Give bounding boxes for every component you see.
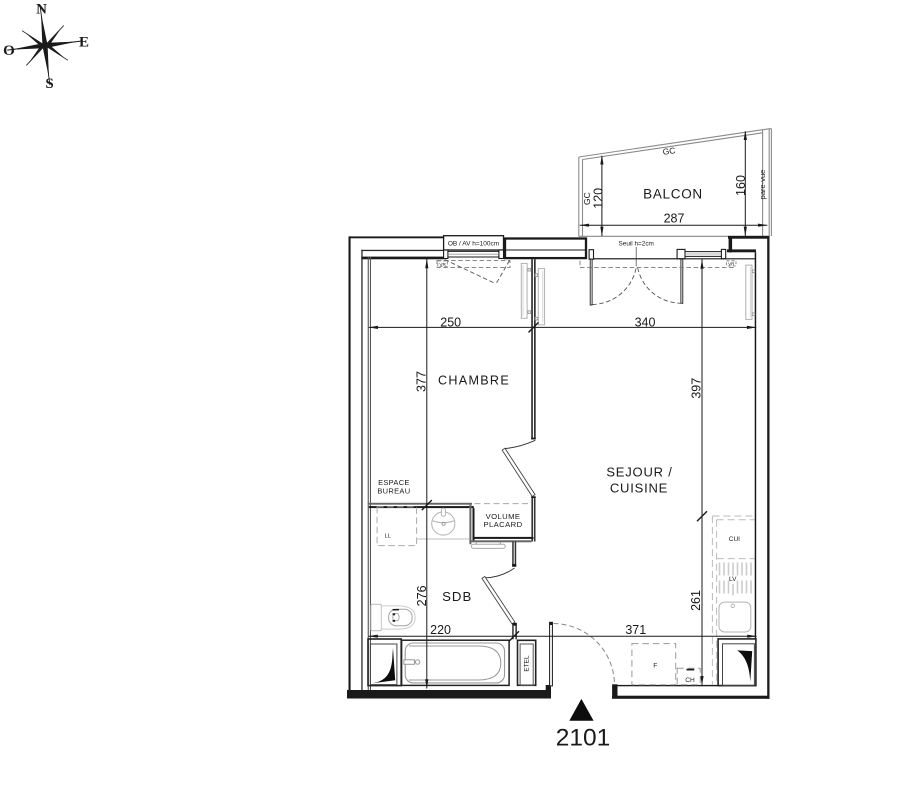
svg-text:250: 250 [440,315,461,329]
svg-text:F: F [653,663,657,670]
svg-text:276: 276 [415,585,429,606]
svg-text:CUISINE: CUISINE [610,481,668,496]
svg-text:GC: GC [662,145,676,157]
svg-text:E: E [79,35,89,51]
svg-text:SEJOUR /: SEJOUR / [606,464,672,479]
svg-text:VR: VR [439,262,446,267]
svg-text:GC: GC [582,192,592,205]
svg-text:397: 397 [689,378,703,399]
svg-text:PLACARD: PLACARD [483,520,522,529]
svg-text:371: 371 [625,623,646,637]
svg-text:CH: CH [685,677,695,684]
svg-text:Seuil h=2cm: Seuil h=2cm [619,240,654,247]
svg-text:SDB: SDB [442,589,472,604]
svg-text:160: 160 [734,175,748,196]
svg-text:BALCON: BALCON [643,187,703,202]
svg-text:N: N [36,2,47,18]
svg-text:CHAMBRE: CHAMBRE [438,373,510,387]
svg-text:377: 377 [414,371,428,392]
svg-text:LL: LL [384,534,391,540]
svg-text:CUI: CUI [729,536,740,543]
svg-text:261: 261 [689,590,703,611]
svg-text:2101: 2101 [556,725,611,752]
svg-text:340: 340 [635,315,656,329]
svg-text:120: 120 [591,188,605,209]
svg-text:OB / AV h=100cm: OB / AV h=100cm [448,241,499,248]
svg-text:ETEL: ETEL [524,655,531,672]
svg-text:BUREAU: BUREAU [377,487,410,496]
svg-text:pare-vue: pare-vue [758,170,767,200]
svg-text:220: 220 [430,623,451,637]
svg-text:LV: LV [729,576,737,583]
svg-text:S: S [45,76,53,92]
svg-text:O: O [3,43,15,59]
svg-text:VR: VR [728,261,735,266]
svg-text:287: 287 [664,211,685,225]
